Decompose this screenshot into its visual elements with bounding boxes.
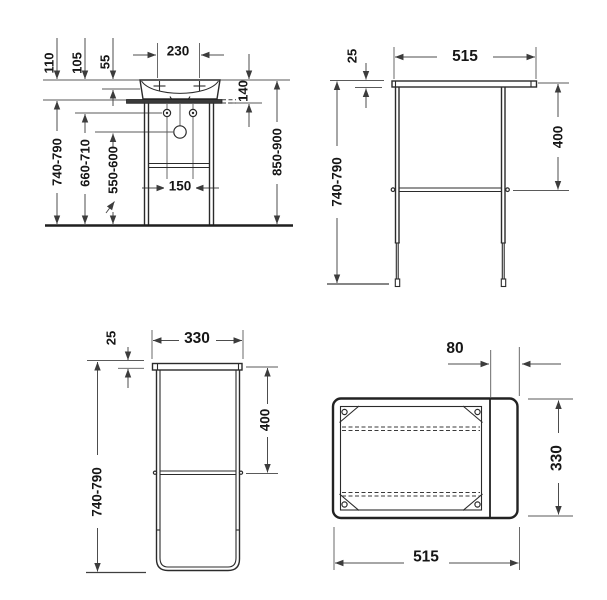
frame-drawing xyxy=(333,399,518,519)
dim-frame-width: 515 xyxy=(452,48,478,65)
frame-top-view: 80 330 515 xyxy=(333,340,573,570)
tap-hole-marks xyxy=(154,81,206,91)
adjustable-foot xyxy=(395,279,399,287)
dim-bar-thickness: 25 xyxy=(345,49,360,63)
left-leg xyxy=(395,87,400,287)
frame-front-view: 25 515 400 740-790 xyxy=(327,47,569,287)
dim-crossbar-drop: 400 xyxy=(551,126,566,149)
top-bar xyxy=(392,81,537,87)
dim-rim-height: 850-900 xyxy=(270,128,285,176)
drain-hole xyxy=(174,126,186,138)
dim-fixing-spacing: 150 xyxy=(169,179,192,194)
dim-rim-to-frame: 110 xyxy=(42,53,57,74)
dim-frame-depth: 330 xyxy=(184,330,210,347)
dim-frame-height: 740-790 xyxy=(50,138,65,186)
top-bar xyxy=(153,364,243,371)
frame-drawing xyxy=(391,81,536,287)
dim-frame-height: 740-790 xyxy=(90,467,105,517)
dim-drain-height: 550-600 xyxy=(106,146,121,194)
frame-drawing xyxy=(153,364,243,571)
dim-towel-rail-section: 80 xyxy=(446,340,463,357)
dimension-lines xyxy=(337,57,558,283)
dim-frame-height: 740-790 xyxy=(330,157,345,207)
dim-crossbar-drop: 400 xyxy=(258,409,273,432)
frame-side-view: 25 330 400 740-790 xyxy=(86,330,278,573)
dim-tap-spacing: 230 xyxy=(167,44,190,59)
technical-drawing-canvas: 230 110 105 55 140 740-790 660-710 550-6… xyxy=(0,0,607,600)
console-plate xyxy=(127,100,223,104)
leg-runner-outer xyxy=(157,370,240,571)
dim-rim-to-inner-edge: 55 xyxy=(98,55,113,69)
crossbar xyxy=(153,471,242,475)
dim-frame-depth: 330 xyxy=(549,445,566,471)
frame-crossbar xyxy=(149,164,210,168)
dim-bar-thickness: 25 xyxy=(104,331,119,345)
washbasin-front-view: 230 110 105 55 140 740-790 660-710 550-6… xyxy=(42,38,294,226)
leg-runner-inner xyxy=(160,370,236,567)
reference-lines xyxy=(86,330,278,573)
basin-bowl-curve xyxy=(142,81,219,93)
basin-outline xyxy=(140,80,220,99)
dim-basin-height: 140 xyxy=(236,80,251,102)
technical-drawing-page: 230 110 105 55 140 740-790 660-710 550-6… xyxy=(0,0,607,600)
dim-frame-width: 515 xyxy=(413,549,439,566)
dimension-lines xyxy=(98,341,268,572)
crossbar xyxy=(391,188,509,192)
dim-fixing-height: 660-710 xyxy=(78,139,93,187)
adjustable-foot xyxy=(501,279,505,287)
right-leg xyxy=(501,87,506,287)
reference-lines xyxy=(327,47,569,284)
dim-rim-to-fixing: 105 xyxy=(70,52,85,74)
